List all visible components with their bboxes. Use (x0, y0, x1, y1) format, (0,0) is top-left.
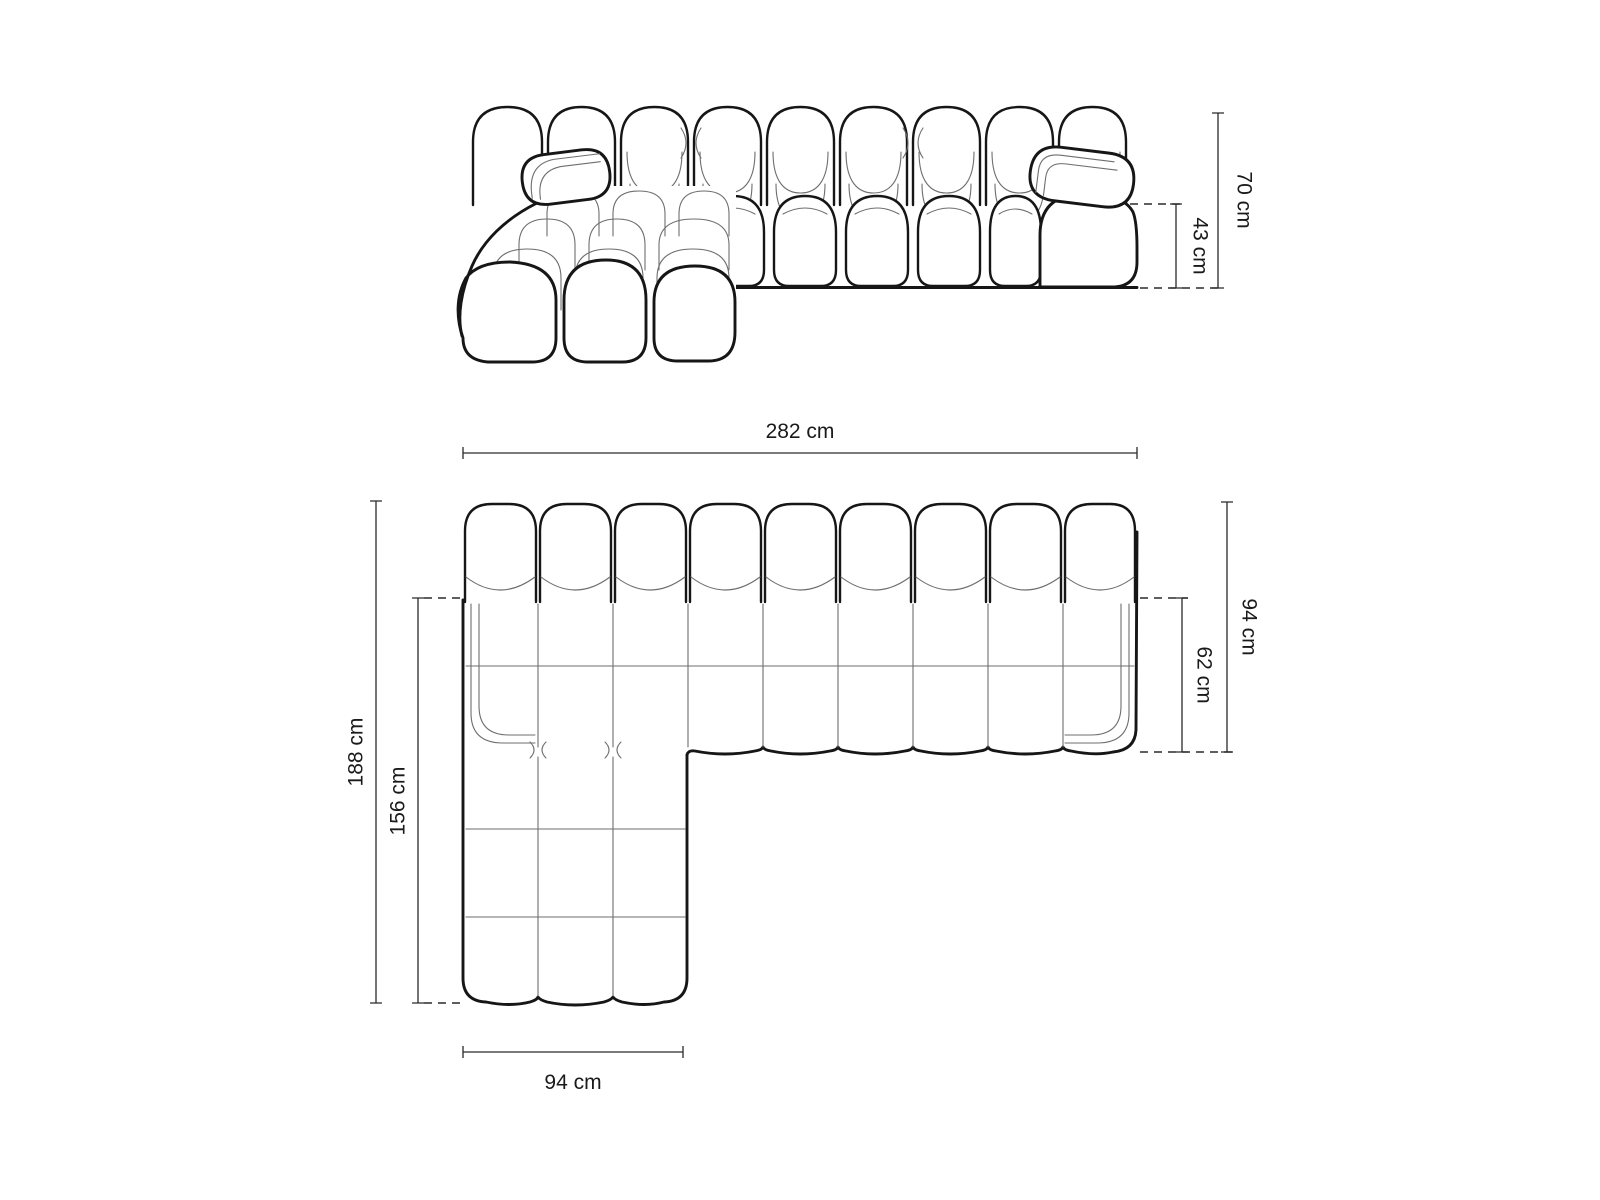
front-left-armrest (519, 147, 612, 207)
plan-width-dimension: 282 cm (463, 420, 1137, 459)
plan-chaise-width-dimension: 94 cm (463, 1046, 683, 1094)
plan-seams (466, 604, 1134, 996)
plan-width-label: 282 cm (766, 420, 835, 443)
plan-seat-depth-label: 62 cm (1192, 646, 1215, 703)
plan-chaise-width-label: 94 cm (544, 1071, 601, 1094)
front-view-drawing: 70 cm 43 cm (458, 107, 1255, 362)
top-view-drawing: 282 cm 94 cm 62 cm 188 cm 156 cm 94 cm (345, 420, 1261, 1094)
plan-armrest-contours (471, 604, 1129, 743)
front-seat-height-dimension: 43 cm (1130, 204, 1211, 288)
plan-chaise-depth-label: 156 cm (387, 767, 410, 836)
plan-total-depth-dimension: 188 cm (345, 501, 382, 1003)
sofa-dimension-diagram: 70 cm 43 cm (0, 0, 1600, 1200)
plan-total-depth-label: 188 cm (345, 718, 368, 787)
front-height-label: 70 cm (1232, 171, 1255, 228)
front-right-armrest (1027, 144, 1137, 287)
front-chaise (458, 186, 736, 362)
plan-seat-depth-dimension: 62 cm (1140, 598, 1233, 752)
front-seat-height-label: 43 cm (1188, 217, 1211, 274)
sofa-dimension-diagram-page: 70 cm 43 cm (0, 0, 1600, 1200)
plan-backrest-bubbles (465, 504, 1135, 602)
plan-depth-dimension: 94 cm (1221, 502, 1260, 752)
plan-outline (463, 532, 1137, 1005)
plan-chaise-depth-dimension: 156 cm (387, 598, 461, 1003)
plan-depth-label: 94 cm (1237, 598, 1260, 655)
